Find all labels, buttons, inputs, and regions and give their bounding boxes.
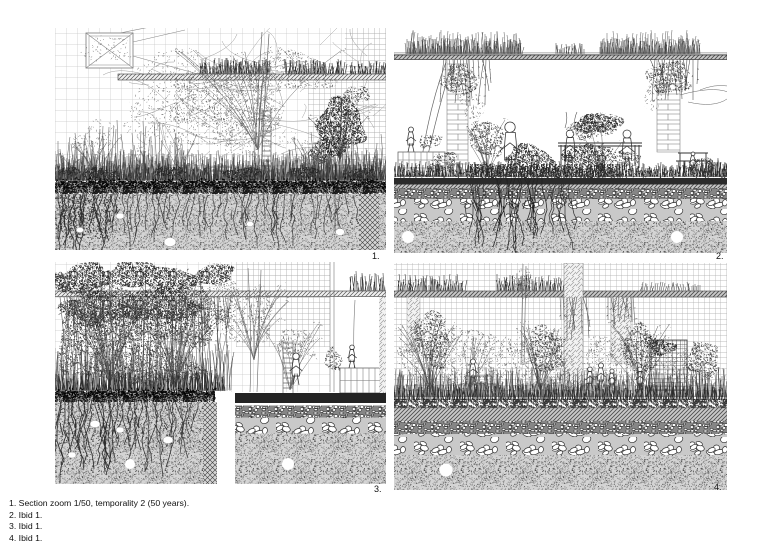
svg-text:4.: 4. <box>714 482 722 492</box>
svg-text:2.: 2. <box>716 251 724 261</box>
svg-text:3.: 3. <box>374 484 382 494</box>
svg-text:1.: 1. <box>372 251 380 261</box>
